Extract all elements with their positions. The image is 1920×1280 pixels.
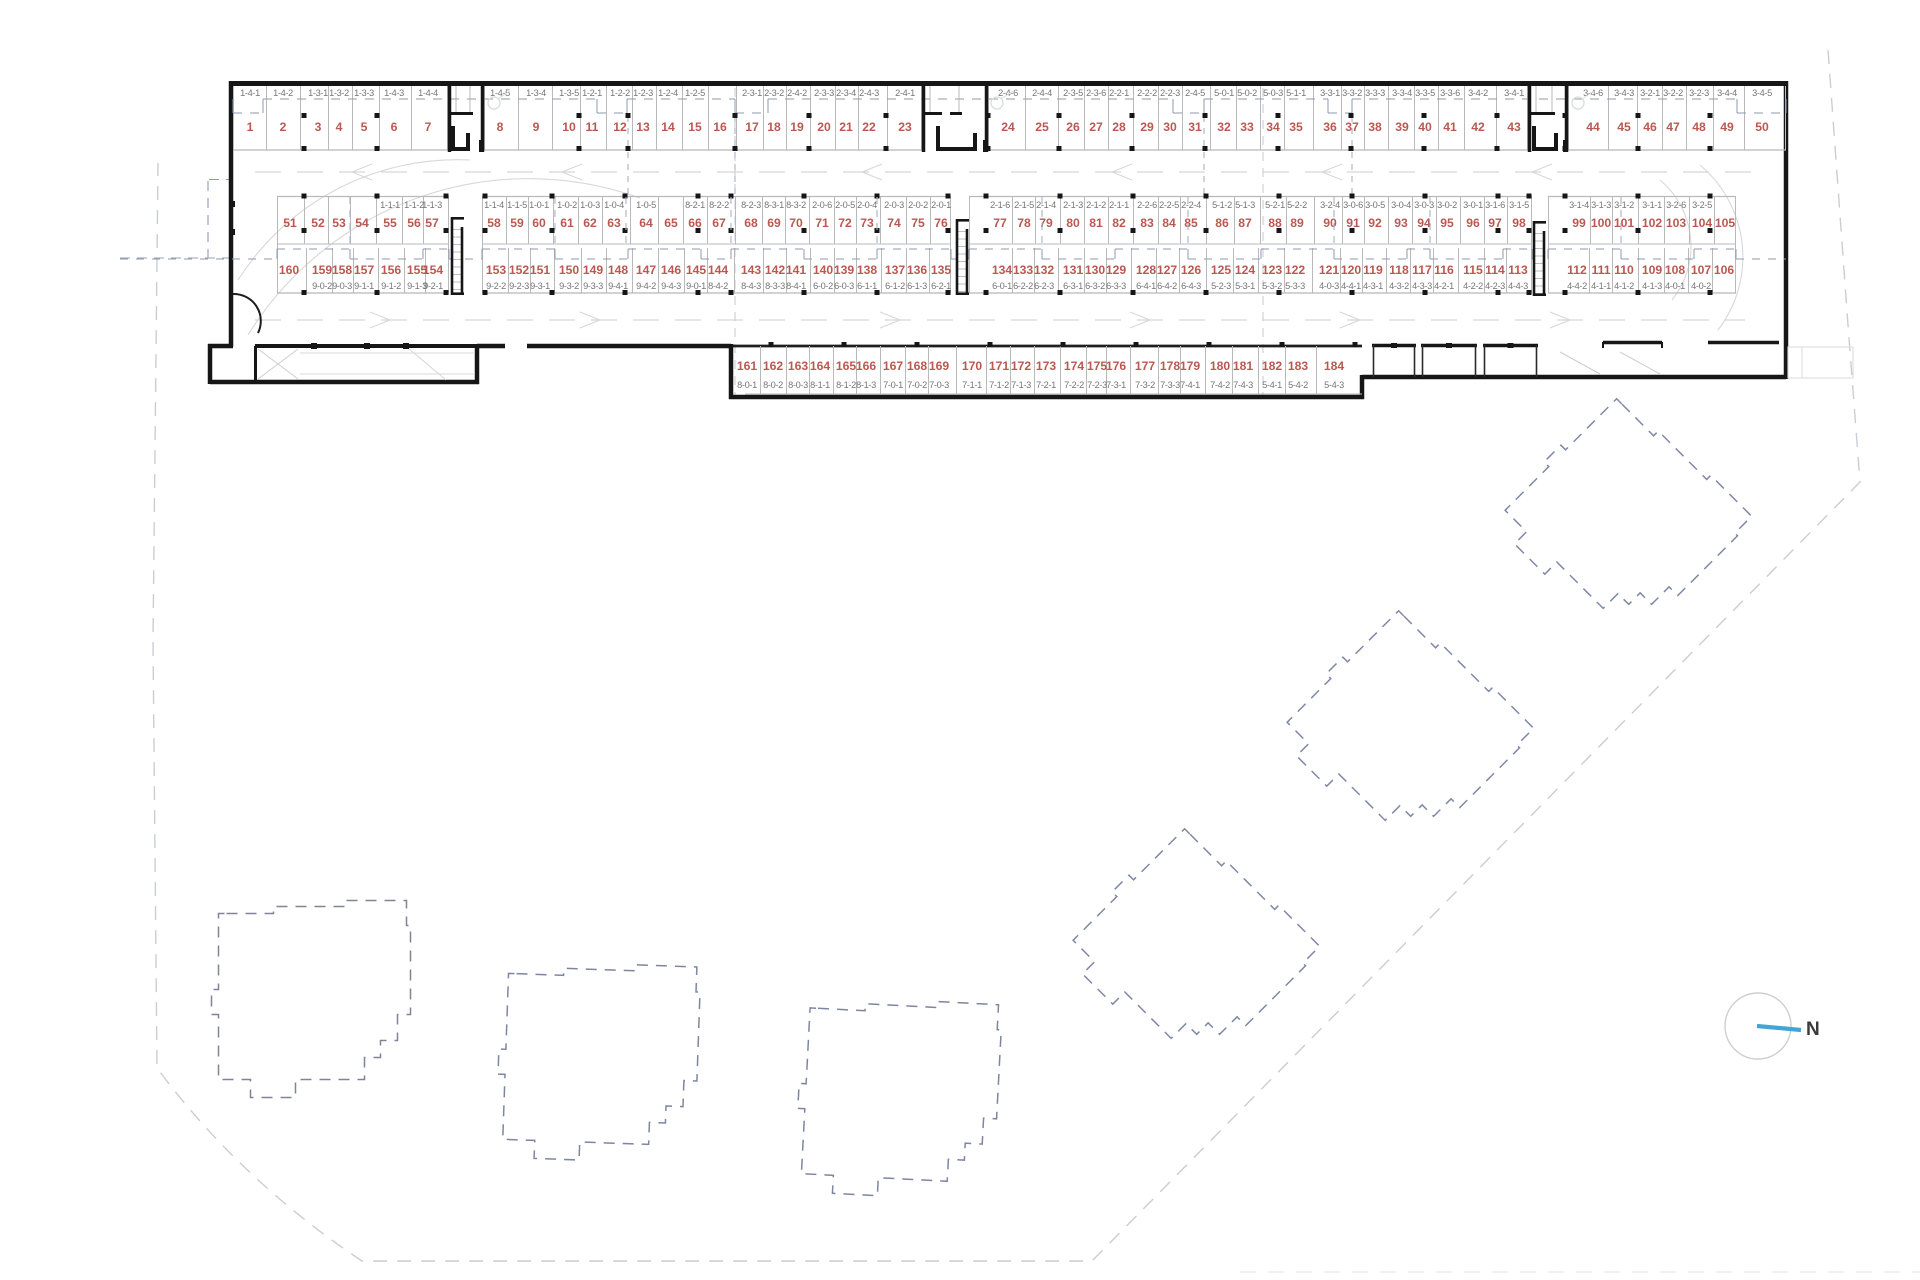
svg-text:5-4-3: 5-4-3: [1324, 380, 1344, 390]
svg-text:104: 104: [1692, 216, 1713, 230]
svg-text:46: 46: [1643, 120, 1657, 134]
svg-text:8-3-1: 8-3-1: [764, 200, 784, 210]
svg-text:91: 91: [1346, 216, 1360, 230]
svg-text:2-0-4: 2-0-4: [857, 200, 877, 210]
svg-text:7-2-3: 7-2-3: [1087, 380, 1107, 390]
svg-text:137: 137: [885, 263, 906, 277]
svg-text:153: 153: [486, 263, 507, 277]
svg-text:160: 160: [279, 263, 300, 277]
svg-text:2-3-1: 2-3-1: [742, 88, 762, 98]
svg-text:68: 68: [744, 216, 758, 230]
svg-text:99: 99: [1572, 216, 1586, 230]
svg-text:142: 142: [765, 263, 786, 277]
svg-text:6-1-3: 6-1-3: [907, 281, 927, 291]
svg-text:7-1-2: 7-1-2: [989, 380, 1009, 390]
svg-text:174: 174: [1064, 359, 1085, 373]
svg-text:1-3-4: 1-3-4: [526, 88, 546, 98]
svg-text:54: 54: [355, 216, 369, 230]
svg-text:3-3-6: 3-3-6: [1440, 88, 1460, 98]
svg-text:49: 49: [1720, 120, 1734, 134]
svg-text:6-0-1: 6-0-1: [992, 281, 1012, 291]
svg-text:2-0-5: 2-0-5: [835, 200, 855, 210]
svg-text:6-2-3: 6-2-3: [1034, 281, 1054, 291]
svg-text:14: 14: [661, 120, 675, 134]
svg-text:8-0-3: 8-0-3: [788, 380, 808, 390]
svg-text:8-2-3: 8-2-3: [741, 200, 761, 210]
svg-text:127: 127: [1157, 263, 1178, 277]
svg-text:1-4-4: 1-4-4: [418, 88, 438, 98]
svg-text:168: 168: [907, 359, 928, 373]
svg-text:9-1-1: 9-1-1: [354, 281, 374, 291]
svg-text:60: 60: [532, 216, 546, 230]
svg-text:146: 146: [661, 263, 682, 277]
svg-text:7: 7: [425, 120, 432, 134]
svg-text:63: 63: [607, 216, 621, 230]
svg-text:77: 77: [993, 216, 1007, 230]
svg-text:132: 132: [1034, 263, 1055, 277]
svg-text:50: 50: [1755, 120, 1769, 134]
svg-text:1-1-1: 1-1-1: [380, 200, 400, 210]
svg-text:81: 81: [1089, 216, 1103, 230]
svg-text:8-4-3: 8-4-3: [741, 281, 761, 291]
svg-text:80: 80: [1066, 216, 1080, 230]
svg-text:4: 4: [336, 120, 343, 134]
svg-text:2-3-6: 2-3-6: [1086, 88, 1106, 98]
svg-text:55: 55: [383, 216, 397, 230]
svg-text:156: 156: [381, 263, 402, 277]
svg-text:134: 134: [992, 263, 1013, 277]
svg-text:175: 175: [1087, 359, 1108, 373]
svg-text:6-2-1: 6-2-1: [931, 281, 951, 291]
svg-text:1-4-1: 1-4-1: [240, 88, 260, 98]
svg-text:6-1-1: 6-1-1: [857, 281, 877, 291]
svg-text:3-1-3: 3-1-3: [1591, 200, 1611, 210]
svg-text:6-4-2: 6-4-2: [1157, 281, 1177, 291]
svg-text:29: 29: [1140, 120, 1154, 134]
svg-text:1-2-1: 1-2-1: [582, 88, 602, 98]
svg-text:107: 107: [1691, 263, 1712, 277]
svg-text:74: 74: [887, 216, 901, 230]
svg-text:1-2-2: 1-2-2: [610, 88, 630, 98]
svg-text:173: 173: [1036, 359, 1057, 373]
svg-text:85: 85: [1184, 216, 1198, 230]
svg-text:2-4-2: 2-4-2: [787, 88, 807, 98]
svg-text:4-1-1: 4-1-1: [1591, 281, 1611, 291]
svg-text:3-2-2: 3-2-2: [1663, 88, 1683, 98]
svg-text:3-1-5: 3-1-5: [1509, 200, 1529, 210]
svg-text:109: 109: [1642, 263, 1663, 277]
svg-text:161: 161: [737, 359, 758, 373]
svg-text:57: 57: [425, 216, 439, 230]
svg-text:6-2-2: 6-2-2: [1013, 281, 1033, 291]
svg-text:4-0-2: 4-0-2: [1691, 281, 1711, 291]
svg-text:64: 64: [639, 216, 653, 230]
svg-text:131: 131: [1063, 263, 1084, 277]
svg-text:8-2-2: 8-2-2: [709, 200, 729, 210]
svg-text:4-4-3: 4-4-3: [1508, 281, 1528, 291]
svg-text:1: 1: [247, 120, 254, 134]
svg-text:2-2-1: 2-2-1: [1109, 88, 1129, 98]
svg-text:5-4-2: 5-4-2: [1288, 380, 1308, 390]
svg-text:70: 70: [789, 216, 803, 230]
svg-text:58: 58: [487, 216, 501, 230]
svg-text:6-4-3: 6-4-3: [1181, 281, 1201, 291]
svg-text:7-2-1: 7-2-1: [1036, 380, 1056, 390]
svg-text:87: 87: [1238, 216, 1252, 230]
svg-text:8-2-1: 8-2-1: [685, 200, 705, 210]
svg-text:177: 177: [1135, 359, 1156, 373]
svg-text:6: 6: [391, 120, 398, 134]
svg-text:8: 8: [497, 120, 504, 134]
svg-text:8-4-1: 8-4-1: [786, 281, 806, 291]
svg-text:7-1-3: 7-1-3: [1011, 380, 1031, 390]
svg-text:39: 39: [1395, 120, 1409, 134]
svg-text:2-4-1: 2-4-1: [895, 88, 915, 98]
svg-text:5-4-1: 5-4-1: [1262, 380, 1282, 390]
svg-text:47: 47: [1666, 120, 1680, 134]
svg-text:143: 143: [741, 263, 762, 277]
svg-text:121: 121: [1319, 263, 1340, 277]
svg-text:7-0-1: 7-0-1: [883, 380, 903, 390]
svg-text:7-0-3: 7-0-3: [929, 380, 949, 390]
svg-text:2-1-6: 2-1-6: [990, 200, 1010, 210]
svg-text:181: 181: [1233, 359, 1254, 373]
svg-text:33: 33: [1240, 120, 1254, 134]
svg-text:106: 106: [1714, 263, 1735, 277]
svg-text:2-3-2: 2-3-2: [764, 88, 784, 98]
svg-text:140: 140: [813, 263, 834, 277]
svg-text:38: 38: [1368, 120, 1382, 134]
svg-text:16: 16: [713, 120, 727, 134]
svg-text:148: 148: [608, 263, 629, 277]
svg-text:1-4-2: 1-4-2: [273, 88, 293, 98]
svg-text:126: 126: [1181, 263, 1202, 277]
svg-text:35: 35: [1289, 120, 1303, 134]
svg-text:3-3-1: 3-3-1: [1320, 88, 1340, 98]
svg-text:5-1-2: 5-1-2: [1212, 200, 1232, 210]
svg-text:2-1-2: 2-1-2: [1086, 200, 1106, 210]
svg-text:1-3-3: 1-3-3: [354, 88, 374, 98]
svg-text:149: 149: [583, 263, 604, 277]
svg-text:120: 120: [1341, 263, 1362, 277]
svg-text:93: 93: [1394, 216, 1408, 230]
svg-text:3-4-2: 3-4-2: [1468, 88, 1488, 98]
svg-text:3-1-2: 3-1-2: [1614, 200, 1634, 210]
svg-text:25: 25: [1035, 120, 1049, 134]
svg-text:114: 114: [1485, 263, 1505, 277]
svg-text:8-1-2: 8-1-2: [836, 380, 856, 390]
svg-text:1-0-5: 1-0-5: [636, 200, 656, 210]
svg-text:N: N: [1806, 1019, 1820, 1040]
svg-text:2-2-3: 2-2-3: [1160, 88, 1180, 98]
svg-text:11: 11: [586, 120, 599, 134]
svg-text:2-2-2: 2-2-2: [1137, 88, 1157, 98]
svg-text:3-0-4: 3-0-4: [1391, 200, 1411, 210]
svg-text:8-1-3: 8-1-3: [856, 380, 876, 390]
svg-text:169: 169: [929, 359, 950, 373]
svg-text:2-4-5: 2-4-5: [1185, 88, 1205, 98]
svg-text:95: 95: [1440, 216, 1454, 230]
svg-text:9-2-3: 9-2-3: [509, 281, 529, 291]
svg-text:4-2-2: 4-2-2: [1463, 281, 1483, 291]
svg-text:1-0-1: 1-0-1: [529, 200, 549, 210]
svg-text:164: 164: [810, 359, 831, 373]
svg-text:2-3-4: 2-3-4: [836, 88, 856, 98]
svg-text:145: 145: [686, 263, 707, 277]
svg-text:108: 108: [1665, 263, 1686, 277]
svg-text:129: 129: [1106, 263, 1127, 277]
svg-text:2-0-1: 2-0-1: [931, 200, 951, 210]
svg-text:34: 34: [1266, 120, 1280, 134]
svg-text:124: 124: [1235, 263, 1256, 277]
svg-text:110: 110: [1614, 263, 1634, 277]
svg-text:9-0-1: 9-0-1: [686, 281, 706, 291]
svg-text:20: 20: [817, 120, 831, 134]
svg-text:119: 119: [1363, 263, 1383, 277]
svg-text:5-1-1: 5-1-1: [1286, 88, 1306, 98]
svg-text:4-1-2: 4-1-2: [1614, 281, 1634, 291]
svg-text:113: 113: [1508, 263, 1528, 277]
svg-text:7-4-1: 7-4-1: [1180, 380, 1200, 390]
svg-text:111: 111: [1592, 263, 1611, 277]
svg-text:159: 159: [312, 263, 333, 277]
svg-text:147: 147: [636, 263, 657, 277]
svg-text:7-3-1: 7-3-1: [1106, 380, 1126, 390]
svg-text:1-3-1: 1-3-1: [308, 88, 328, 98]
svg-text:183: 183: [1288, 359, 1309, 373]
svg-text:7-3-2: 7-3-2: [1135, 380, 1155, 390]
svg-text:105: 105: [1715, 216, 1736, 230]
svg-text:2-4-6: 2-4-6: [998, 88, 1018, 98]
svg-text:3-1-6: 3-1-6: [1485, 200, 1505, 210]
svg-text:17: 17: [745, 120, 759, 134]
svg-text:123: 123: [1262, 263, 1283, 277]
svg-text:1-3-2: 1-3-2: [329, 88, 349, 98]
svg-text:5-0-1: 5-0-1: [1214, 88, 1234, 98]
svg-text:43: 43: [1507, 120, 1521, 134]
svg-text:6-4-1: 6-4-1: [1136, 281, 1156, 291]
svg-text:2-0-2: 2-0-2: [908, 200, 928, 210]
svg-text:4-2-1: 4-2-1: [1434, 281, 1454, 291]
svg-text:1-2-4: 1-2-4: [658, 88, 678, 98]
svg-text:3-3-2: 3-3-2: [1342, 88, 1362, 98]
svg-text:103: 103: [1666, 216, 1687, 230]
svg-text:59: 59: [510, 216, 524, 230]
svg-text:48: 48: [1692, 120, 1706, 134]
svg-text:23: 23: [898, 120, 912, 134]
svg-text:56: 56: [407, 216, 421, 230]
svg-text:4-4-1: 4-4-1: [1341, 281, 1361, 291]
svg-text:5-2-3: 5-2-3: [1211, 281, 1231, 291]
svg-text:5-3-1: 5-3-1: [1235, 281, 1255, 291]
svg-text:1-4-3: 1-4-3: [384, 88, 404, 98]
svg-text:90: 90: [1323, 216, 1337, 230]
svg-text:2: 2: [280, 120, 287, 134]
svg-text:102: 102: [1642, 216, 1663, 230]
svg-text:7-2-2: 7-2-2: [1064, 380, 1084, 390]
svg-text:9-4-1: 9-4-1: [608, 281, 628, 291]
svg-text:1-1-3: 1-1-3: [422, 200, 442, 210]
svg-text:130: 130: [1085, 263, 1106, 277]
svg-text:1-0-3: 1-0-3: [580, 200, 600, 210]
svg-text:4-2-3: 4-2-3: [1485, 281, 1505, 291]
svg-text:65: 65: [664, 216, 678, 230]
svg-text:9-0-3: 9-0-3: [332, 281, 352, 291]
svg-text:3-3-5: 3-3-5: [1415, 88, 1435, 98]
svg-text:26: 26: [1066, 120, 1080, 134]
svg-text:18: 18: [767, 120, 781, 134]
svg-text:19: 19: [790, 120, 804, 134]
svg-text:51: 51: [283, 216, 297, 230]
svg-text:3-2-3: 3-2-3: [1689, 88, 1709, 98]
svg-text:3-4-3: 3-4-3: [1614, 88, 1634, 98]
svg-text:9-3-1: 9-3-1: [530, 281, 550, 291]
svg-text:3-0-6: 3-0-6: [1343, 200, 1363, 210]
svg-text:5-0-2: 5-0-2: [1237, 88, 1257, 98]
svg-text:8-3-3: 8-3-3: [765, 281, 785, 291]
svg-text:69: 69: [767, 216, 781, 230]
svg-text:98: 98: [1512, 216, 1526, 230]
svg-text:1-0-4: 1-0-4: [604, 200, 624, 210]
svg-text:8-0-1: 8-0-1: [737, 380, 757, 390]
svg-text:5: 5: [361, 120, 368, 134]
svg-text:94: 94: [1417, 216, 1431, 230]
svg-text:76: 76: [934, 216, 948, 230]
svg-text:3-2-6: 3-2-6: [1666, 200, 1686, 210]
svg-text:88: 88: [1268, 216, 1282, 230]
svg-text:116: 116: [1434, 263, 1454, 277]
svg-text:8-0-2: 8-0-2: [763, 380, 783, 390]
svg-text:2-2-4: 2-2-4: [1181, 200, 1201, 210]
svg-text:179: 179: [1180, 359, 1201, 373]
svg-text:2-3-3: 2-3-3: [814, 88, 834, 98]
svg-text:3-2-5: 3-2-5: [1692, 200, 1712, 210]
svg-text:172: 172: [1011, 359, 1032, 373]
svg-text:133: 133: [1013, 263, 1034, 277]
svg-text:5-0-3: 5-0-3: [1263, 88, 1283, 98]
svg-text:180: 180: [1210, 359, 1231, 373]
svg-text:24: 24: [1001, 120, 1015, 134]
svg-text:2-1-4: 2-1-4: [1036, 200, 1056, 210]
svg-text:118: 118: [1389, 263, 1409, 277]
svg-text:3-0-5: 3-0-5: [1365, 200, 1385, 210]
svg-text:4-3-1: 4-3-1: [1363, 281, 1383, 291]
svg-text:75: 75: [911, 216, 925, 230]
svg-text:122: 122: [1285, 263, 1306, 277]
svg-text:30: 30: [1163, 120, 1177, 134]
svg-text:6-3-2: 6-3-2: [1085, 281, 1105, 291]
svg-text:5-1-3: 5-1-3: [1235, 200, 1255, 210]
svg-text:3-4-4: 3-4-4: [1717, 88, 1737, 98]
svg-text:2-1-1: 2-1-1: [1109, 200, 1129, 210]
svg-text:3-2-4: 3-2-4: [1320, 200, 1340, 210]
svg-text:9: 9: [533, 120, 540, 134]
svg-text:83: 83: [1140, 216, 1154, 230]
svg-text:4-3-2: 4-3-2: [1389, 281, 1409, 291]
svg-text:15: 15: [688, 120, 702, 134]
svg-text:184: 184: [1324, 359, 1345, 373]
svg-text:136: 136: [907, 263, 928, 277]
svg-text:72: 72: [838, 216, 852, 230]
svg-text:67: 67: [712, 216, 726, 230]
svg-text:4-3-3: 4-3-3: [1412, 281, 1432, 291]
svg-text:6-3-3: 6-3-3: [1106, 281, 1126, 291]
svg-text:5-3-3: 5-3-3: [1285, 281, 1305, 291]
svg-text:5-3-2: 5-3-2: [1262, 281, 1282, 291]
svg-text:170: 170: [962, 359, 983, 373]
svg-text:21: 21: [839, 120, 853, 134]
svg-text:73: 73: [860, 216, 874, 230]
svg-text:1-2-5: 1-2-5: [685, 88, 705, 98]
svg-text:13: 13: [636, 120, 650, 134]
svg-text:2-1-5: 2-1-5: [1014, 200, 1034, 210]
svg-text:31: 31: [1188, 120, 1202, 134]
svg-text:32: 32: [1217, 120, 1231, 134]
svg-text:9-3-2: 9-3-2: [559, 281, 579, 291]
svg-text:5-2-1: 5-2-1: [1265, 200, 1285, 210]
svg-text:9-0-2: 9-0-2: [312, 281, 332, 291]
svg-text:52: 52: [311, 216, 325, 230]
svg-text:2-3-5: 2-3-5: [1063, 88, 1083, 98]
svg-text:3-0-1: 3-0-1: [1463, 200, 1483, 210]
svg-text:40: 40: [1418, 120, 1432, 134]
svg-text:3-0-2: 3-0-2: [1437, 200, 1457, 210]
svg-text:115: 115: [1463, 263, 1483, 277]
svg-text:4-1-3: 4-1-3: [1642, 281, 1662, 291]
svg-text:152: 152: [509, 263, 530, 277]
svg-text:138: 138: [857, 263, 878, 277]
svg-text:66: 66: [688, 216, 702, 230]
svg-text:41: 41: [1443, 120, 1457, 134]
svg-text:2-0-3: 2-0-3: [884, 200, 904, 210]
svg-text:9-4-3: 9-4-3: [661, 281, 681, 291]
svg-text:7-4-3: 7-4-3: [1233, 380, 1253, 390]
svg-text:3-1-1: 3-1-1: [1642, 200, 1662, 210]
svg-text:7-3-3: 7-3-3: [1160, 380, 1180, 390]
svg-text:144: 144: [708, 263, 729, 277]
svg-text:139: 139: [834, 263, 855, 277]
svg-text:3-1-4: 3-1-4: [1569, 200, 1589, 210]
svg-text:7-0-2: 7-0-2: [907, 380, 927, 390]
svg-text:3-2-1: 3-2-1: [1640, 88, 1660, 98]
svg-text:9-4-2: 9-4-2: [636, 281, 656, 291]
svg-text:7-1-1: 7-1-1: [962, 380, 982, 390]
svg-text:7-4-2: 7-4-2: [1210, 380, 1230, 390]
svg-text:166: 166: [856, 359, 877, 373]
svg-text:97: 97: [1488, 216, 1502, 230]
svg-text:1-3-5: 1-3-5: [559, 88, 579, 98]
svg-text:3-4-5: 3-4-5: [1752, 88, 1772, 98]
svg-text:42: 42: [1471, 120, 1485, 134]
svg-text:165: 165: [836, 359, 857, 373]
svg-text:6-3-1: 6-3-1: [1063, 281, 1083, 291]
svg-text:96: 96: [1466, 216, 1480, 230]
svg-text:36: 36: [1323, 120, 1337, 134]
svg-text:101: 101: [1614, 216, 1635, 230]
svg-text:3: 3: [315, 120, 322, 134]
svg-text:78: 78: [1017, 216, 1031, 230]
svg-text:8-3-2: 8-3-2: [786, 200, 806, 210]
svg-text:89: 89: [1290, 216, 1304, 230]
svg-text:112: 112: [1567, 263, 1587, 277]
svg-text:151: 151: [530, 263, 551, 277]
svg-text:150: 150: [559, 263, 580, 277]
svg-text:141: 141: [786, 263, 807, 277]
svg-text:53: 53: [332, 216, 346, 230]
svg-text:79: 79: [1039, 216, 1053, 230]
svg-text:2-0-6: 2-0-6: [812, 200, 832, 210]
svg-text:135: 135: [931, 263, 952, 277]
